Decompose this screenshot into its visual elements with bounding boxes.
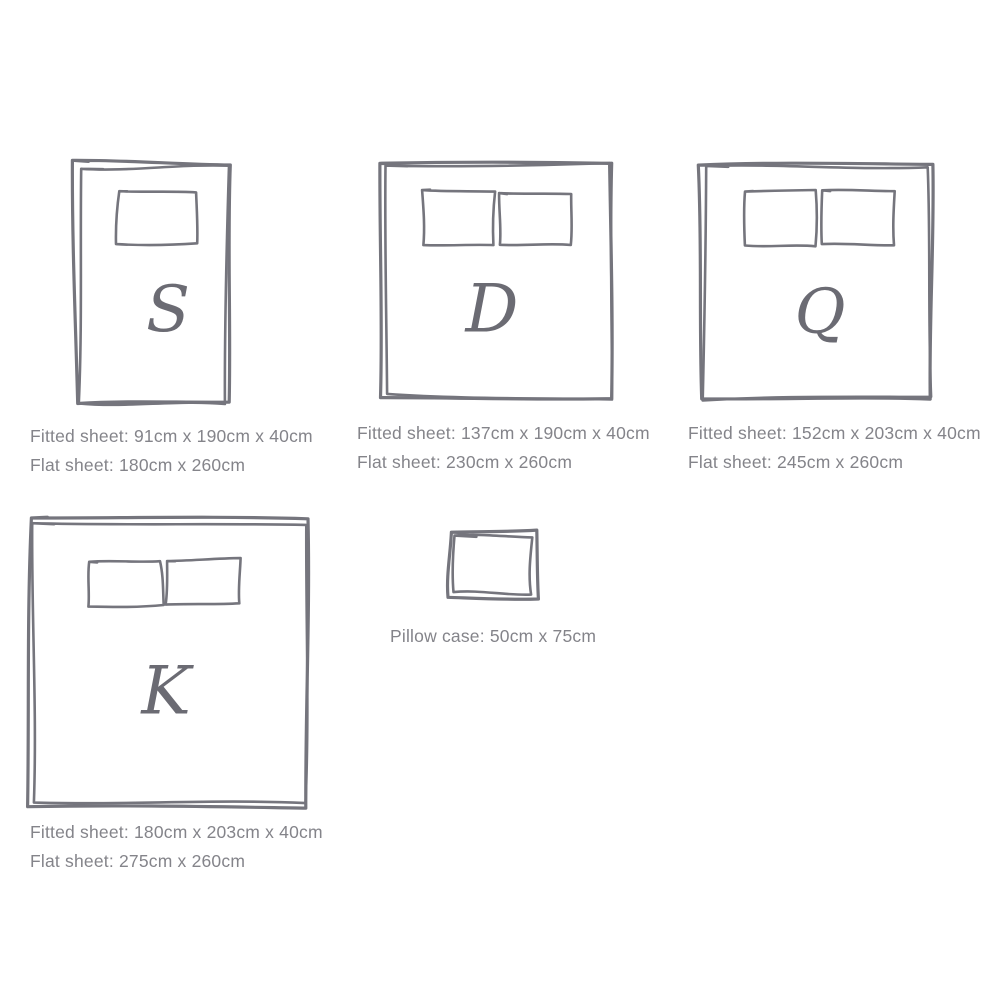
double-bed-illustration: D bbox=[368, 151, 624, 412]
single-size-label: Fitted sheet: 91cm x 190cm x 40cm Flat s… bbox=[30, 422, 313, 480]
single-bed-illustration: S bbox=[63, 151, 242, 415]
single-flat-sheet-text: Flat sheet: 180cm x 260cm bbox=[30, 451, 313, 480]
double-flat-sheet-text: Flat sheet: 230cm x 260cm bbox=[357, 448, 650, 477]
king-bed-letter: K bbox=[140, 653, 194, 730]
pillowcase-outline-2 bbox=[453, 535, 533, 595]
queen-bed-letter: Q bbox=[795, 275, 846, 348]
single-bed-letter: S bbox=[146, 273, 190, 347]
double-size-label: Fitted sheet: 137cm x 190cm x 40cm Flat … bbox=[357, 419, 650, 477]
king-fitted-sheet-text: Fitted sheet: 180cm x 203cm x 40cm bbox=[30, 818, 323, 847]
queen-bed-pillow-left bbox=[744, 190, 817, 246]
queen-flat-sheet-text: Flat sheet: 245cm x 260cm bbox=[688, 448, 981, 477]
king-bed-pillow-right bbox=[166, 558, 241, 605]
queen-size-label: Fitted sheet: 152cm x 203cm x 40cm Flat … bbox=[688, 419, 981, 477]
king-bed-pillow-left bbox=[88, 561, 163, 607]
king-bed-illustration: K bbox=[18, 506, 320, 820]
queen-bed-illustration: Q bbox=[688, 151, 944, 412]
double-bed-pillow-left bbox=[422, 190, 495, 246]
double-fitted-sheet-text: Fitted sheet: 137cm x 190cm x 40cm bbox=[357, 419, 650, 448]
pillowcase-outline bbox=[448, 530, 539, 599]
pillowcase-text: Pillow case: 50cm x 75cm bbox=[390, 622, 596, 651]
size-guide-diagram: S Fitted sheet: 91cm x 190cm x 40cm Flat… bbox=[0, 0, 1000, 1000]
queen-fitted-sheet-text: Fitted sheet: 152cm x 203cm x 40cm bbox=[688, 419, 981, 448]
double-bed-letter: D bbox=[465, 271, 519, 348]
double-bed-pillow-right bbox=[499, 193, 572, 245]
king-flat-sheet-text: Flat sheet: 275cm x 260cm bbox=[30, 847, 323, 876]
queen-bed-pillow-right bbox=[821, 190, 894, 245]
single-bed-pillow bbox=[116, 191, 197, 245]
pillowcase-size-label: Pillow case: 50cm x 75cm bbox=[390, 622, 596, 651]
single-fitted-sheet-text: Fitted sheet: 91cm x 190cm x 40cm bbox=[30, 422, 313, 451]
king-size-label: Fitted sheet: 180cm x 203cm x 40cm Flat … bbox=[30, 818, 323, 876]
pillowcase-illustration bbox=[438, 520, 549, 609]
